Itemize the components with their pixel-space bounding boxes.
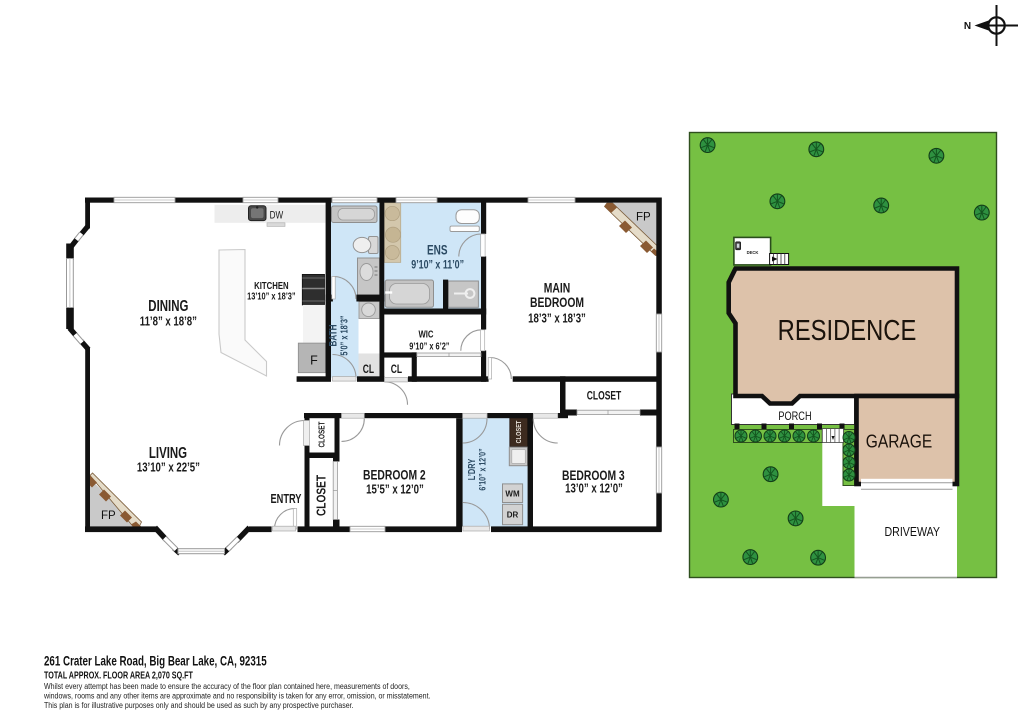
svg-text:CLOSET: CLOSET [515, 421, 523, 444]
svg-text:13’10” x 18’3”: 13’10” x 18’3” [247, 290, 295, 301]
svg-text:CL: CL [363, 364, 374, 377]
svg-text:FP: FP [101, 510, 116, 522]
svg-text:BEDROOM: BEDROOM [530, 294, 584, 310]
svg-text:Whilst every attempt has been: Whilst every attempt has been made to en… [44, 681, 410, 691]
svg-text:DRIVEWAY: DRIVEWAY [885, 525, 941, 539]
svg-text:261 Crater Lake Road, Big Bear: 261 Crater Lake Road, Big Bear Lake, CA,… [44, 654, 267, 669]
svg-text:BEDROOM 2: BEDROOM 2 [363, 467, 426, 483]
svg-text:CLOSET: CLOSET [317, 421, 327, 447]
svg-text:DINING: DINING [148, 297, 188, 314]
svg-text:windows, rooms and any other i: windows, rooms and any other items are a… [43, 691, 430, 701]
svg-text:WIC: WIC [418, 328, 433, 339]
svg-text:BEDROOM 3: BEDROOM 3 [562, 467, 625, 483]
svg-text:ENTRY: ENTRY [271, 493, 303, 507]
svg-text:9’10” x 6’2”: 9’10” x 6’2” [409, 340, 449, 351]
svg-text:This plan is for illustrative: This plan is for illustrative purposes o… [44, 700, 354, 710]
svg-text:5’0” x 18’3”: 5’0” x 18’3” [338, 315, 349, 355]
svg-text:CL: CL [391, 364, 402, 377]
svg-text:WM: WM [505, 490, 520, 499]
svg-text:GARAGE: GARAGE [866, 431, 932, 452]
svg-text:9’10” x 11’0”: 9’10” x 11’0” [411, 258, 464, 272]
svg-text:18’3” x 18’3”: 18’3” x 18’3” [528, 312, 586, 326]
svg-text:11’8” x 18’8”: 11’8” x 18’8” [140, 315, 197, 329]
svg-text:DW: DW [270, 209, 284, 222]
svg-text:F: F [310, 354, 318, 368]
svg-text:FP: FP [636, 212, 651, 224]
svg-text:DECK: DECK [747, 250, 759, 255]
svg-text:13’10” x 22’5”: 13’10” x 22’5” [137, 461, 200, 475]
svg-text:PORCH: PORCH [778, 411, 811, 423]
svg-text:15’5” x 12’0”: 15’5” x 12’0” [366, 483, 424, 497]
svg-text:6’10” x 12’0”: 6’10” x 12’0” [476, 448, 487, 490]
svg-text:N: N [964, 21, 971, 32]
svg-text:CLOSET: CLOSET [314, 475, 328, 516]
svg-text:ENS: ENS [427, 242, 448, 258]
svg-text:TOTAL APPROX. FLOOR AREA 2,070: TOTAL APPROX. FLOOR AREA 2,070 SQ.FT [44, 669, 193, 681]
svg-text:CLOSET: CLOSET [587, 390, 622, 403]
svg-text:LIVING: LIVING [149, 444, 187, 461]
svg-text:RESIDENCE: RESIDENCE [778, 314, 917, 347]
svg-text:13’0” x 12’0”: 13’0” x 12’0” [565, 482, 623, 496]
svg-text:DR: DR [507, 511, 519, 520]
